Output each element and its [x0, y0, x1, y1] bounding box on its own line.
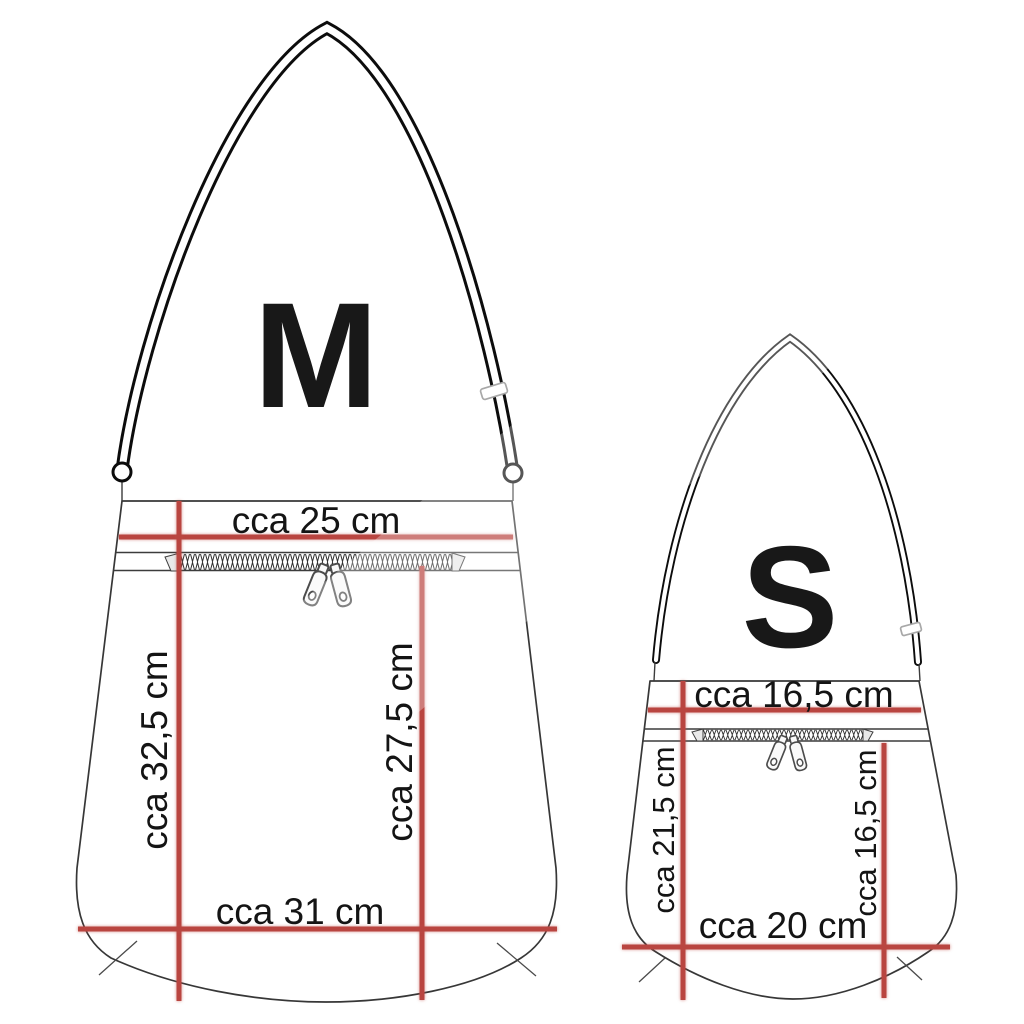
- small-top-width-label: cca 16,5 cm: [694, 674, 893, 715]
- size-label-m: M: [254, 271, 379, 439]
- strap-attach-tick-right-s: [919, 664, 920, 681]
- small-bottom-width-label: cca 20 cm: [699, 905, 868, 946]
- small-right-height-label: cca 16,5 cm: [848, 749, 883, 916]
- small-left-height-label: cca 21,5 cm: [646, 746, 681, 913]
- medium-right-height-label: cca 27,5 cm: [379, 642, 420, 841]
- bag-size-diagram: M cca 25 cm cca 32,5 cm cca 27,5 cm cca …: [0, 0, 1024, 1024]
- strap-attach-tick-left-s: [654, 662, 655, 681]
- medium-left-height-label: cca 32,5 cm: [134, 650, 175, 849]
- size-label-s: S: [742, 516, 839, 678]
- bag-small-corner-fold-left: [639, 958, 665, 982]
- strap-end-ring-left: [113, 463, 131, 481]
- diagram-svg: M cca 25 cm cca 32,5 cm cca 27,5 cm cca …: [0, 0, 1024, 1024]
- medium-bottom-width-label: cca 31 cm: [216, 891, 385, 932]
- medium-top-width-label: cca 25 cm: [232, 500, 401, 541]
